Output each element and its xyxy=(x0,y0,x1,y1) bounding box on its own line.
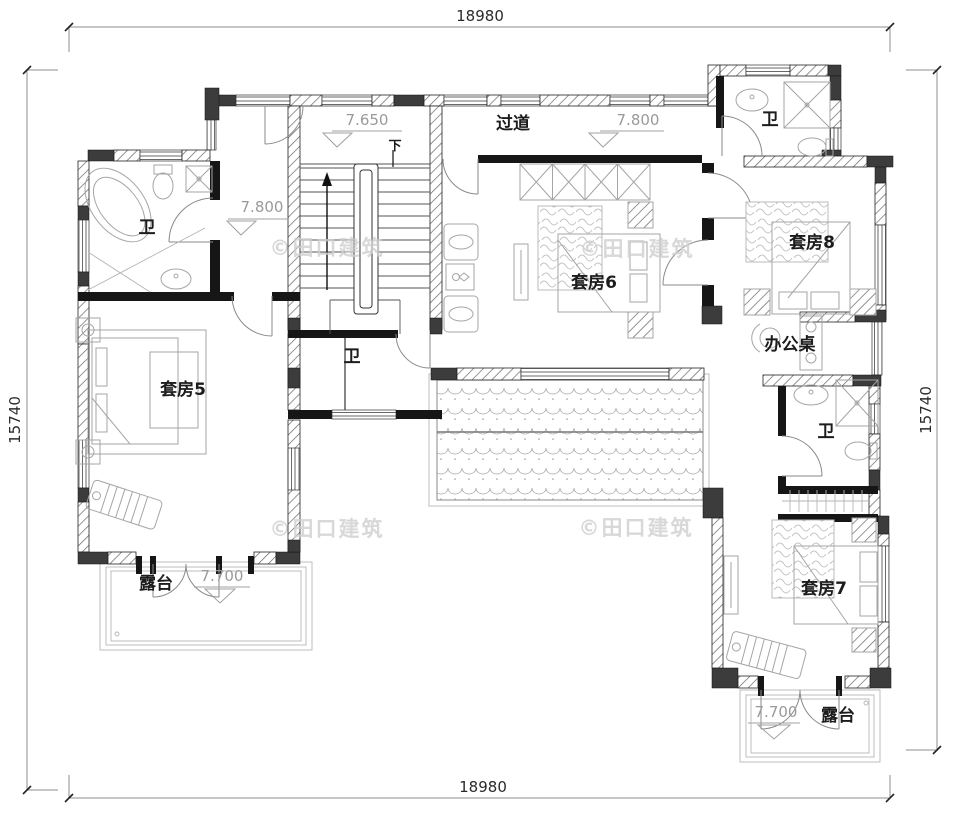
door-bath-middle xyxy=(396,334,430,368)
dimension-top: 18980 xyxy=(65,7,894,52)
svg-text:7.800: 7.800 xyxy=(241,198,284,216)
sink xyxy=(794,385,828,405)
dim-left-value: 15740 xyxy=(6,396,24,444)
nightstand xyxy=(852,518,876,542)
label-bath-upper-right: 卫 xyxy=(762,110,779,130)
label-bath-upper-left: 卫 xyxy=(139,218,156,238)
label-desk: 办公桌 xyxy=(765,334,817,355)
label-bath-right: 卫 xyxy=(818,422,835,442)
nightstand xyxy=(852,628,876,652)
door-suite5 xyxy=(232,296,272,336)
label-terrace-left: 露台 xyxy=(139,573,173,594)
nightstand xyxy=(628,202,653,228)
dim-bottom-value: 18980 xyxy=(459,778,507,796)
dimension-left: 15740 xyxy=(6,66,58,794)
dim-top-value: 18980 xyxy=(456,7,504,25)
shower xyxy=(784,82,830,128)
svg-text:7.800: 7.800 xyxy=(617,111,660,129)
shower xyxy=(186,166,212,192)
watermark-text: ©田口建筑 xyxy=(579,516,694,540)
label-suite7: 套房7 xyxy=(800,578,847,599)
dim-right-value: 15740 xyxy=(917,386,935,434)
stair-arrow-head xyxy=(322,172,332,186)
dimension-right: 15740 xyxy=(906,66,941,754)
rug-suite8 xyxy=(746,202,828,262)
floor-plan-drawing: 18980 18980 15740 15740 xyxy=(0,0,960,820)
nightstand xyxy=(744,289,770,315)
toilet xyxy=(153,165,173,199)
lounge-chair-suite5 xyxy=(85,479,163,530)
tv-cabinet xyxy=(724,556,738,614)
armchair xyxy=(444,296,478,332)
coffee-table xyxy=(446,264,474,290)
door-suite6 xyxy=(443,159,478,194)
label-suite8: 套房8 xyxy=(788,232,835,253)
tv-cabinet xyxy=(514,244,528,300)
armchair xyxy=(444,224,478,260)
svg-text:7.650: 7.650 xyxy=(346,111,389,129)
door-bath-right xyxy=(782,436,822,476)
watermark-text: ©田口建筑 xyxy=(580,237,695,261)
wardrobe-suite6 xyxy=(520,164,650,200)
door-bath-upper-right xyxy=(722,116,762,156)
label-corridor: 过道 xyxy=(496,113,530,134)
floor-plan-page: 18980 18980 15740 15740 xyxy=(0,0,960,820)
sink xyxy=(161,269,191,289)
svg-text:7.700: 7.700 xyxy=(755,703,798,721)
level-terrace-right: 7.700 xyxy=(748,703,800,739)
level-terrace-left: 7.700 xyxy=(194,567,250,603)
label-suite5: 套房5 xyxy=(159,379,206,400)
nightstand xyxy=(850,289,876,315)
watermark-text: ©田口建筑 xyxy=(270,517,385,541)
level-corridor: 7.800 xyxy=(589,111,664,147)
roof-tiles xyxy=(429,374,709,506)
dimension-bottom: 18980 xyxy=(65,775,894,802)
level-hall: 7.800 xyxy=(227,198,288,235)
svg-text:7.700: 7.700 xyxy=(201,567,244,585)
label-suite6: 套房6 xyxy=(570,272,617,293)
label-terrace-right: 露台 xyxy=(821,705,855,726)
label-bath-middle: 卫 xyxy=(344,347,361,367)
watermark-text: ©田口建筑 xyxy=(270,236,385,260)
nightstand xyxy=(628,312,653,338)
sink xyxy=(736,89,768,111)
label-stairs-down: 下 xyxy=(388,139,401,154)
